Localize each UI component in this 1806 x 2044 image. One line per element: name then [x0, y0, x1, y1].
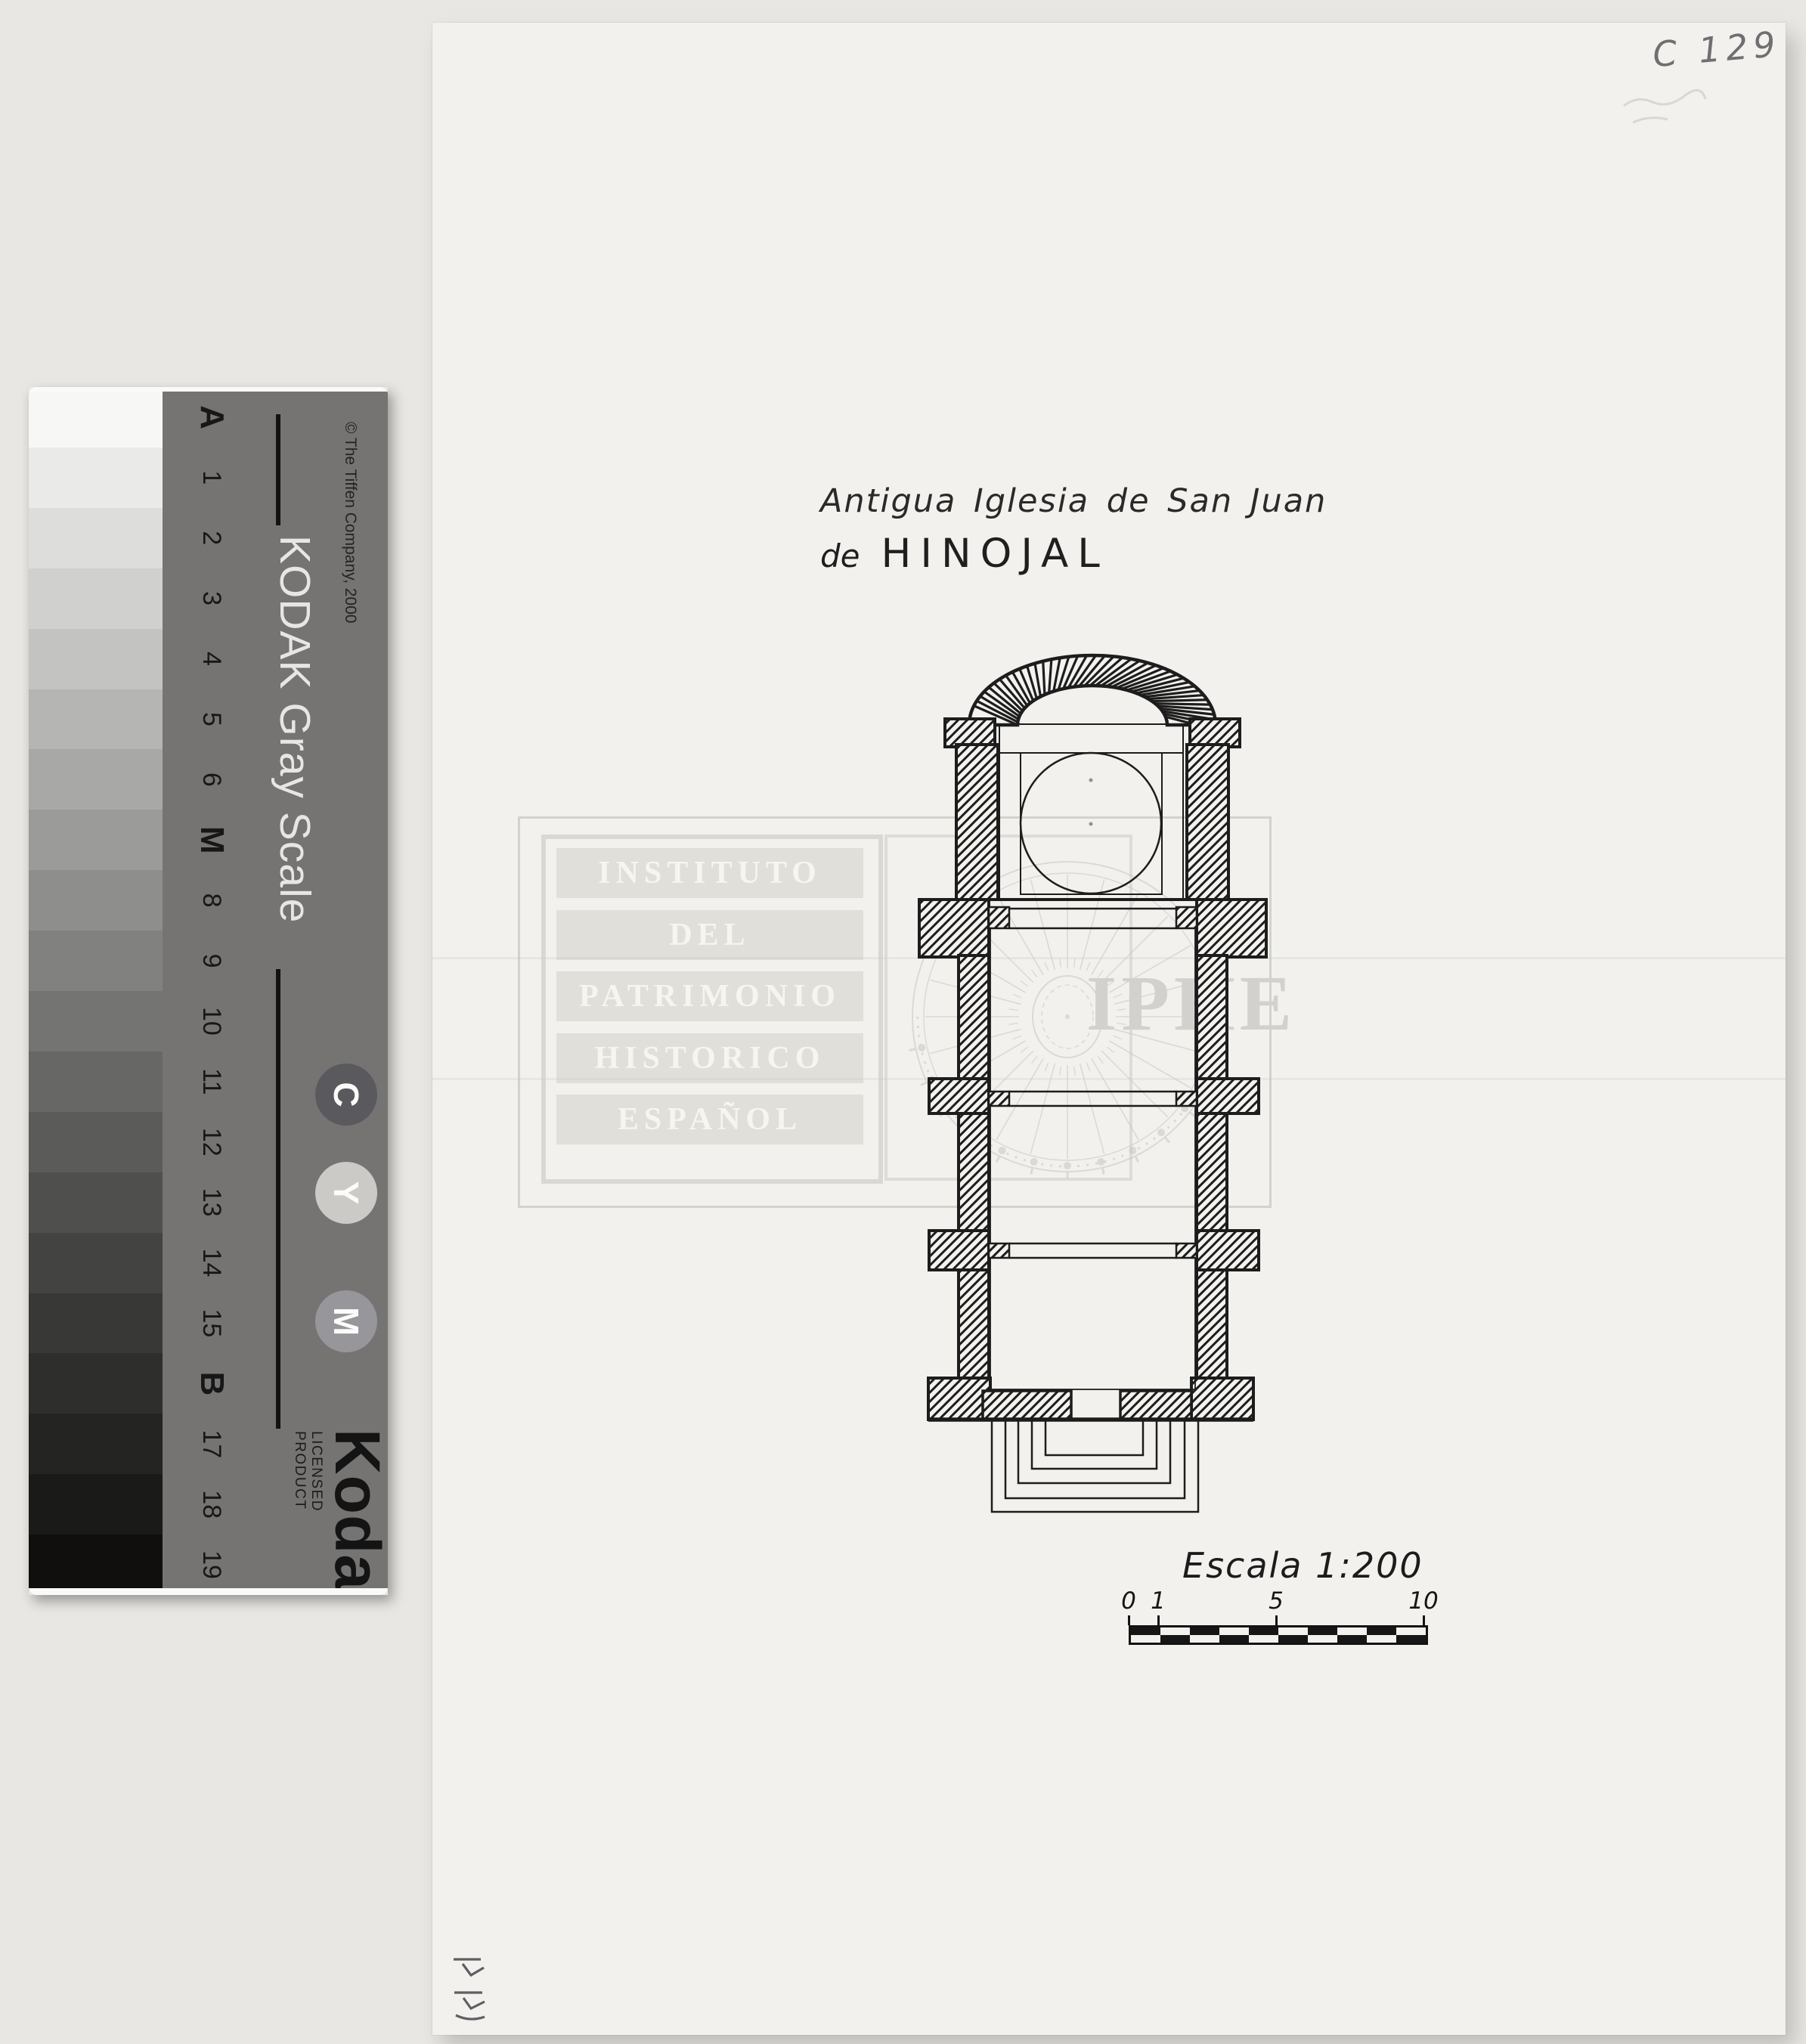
licensed-product-label: LICENSED PRODUCT [291, 1431, 324, 1595]
scale-tick-label: 1 [1151, 1587, 1166, 1615]
gray-patch [29, 1233, 163, 1294]
gray-patch [29, 931, 163, 992]
gray-patch [29, 568, 163, 630]
gray-patch [29, 1414, 163, 1475]
nave-wall [1197, 955, 1227, 1079]
buttress [919, 900, 989, 957]
chancel-lining [999, 753, 1183, 900]
scale-bar-cell [1278, 1635, 1308, 1643]
scale-bar-cell [1337, 1635, 1367, 1643]
nave-wall [959, 955, 989, 1079]
apse-step-band [999, 724, 1183, 753]
scale-tick [1423, 1615, 1425, 1625]
scale-bar-cell [1337, 1627, 1367, 1635]
watermark-acronym: IPHE [1086, 960, 1296, 1047]
patch-label: 1 [190, 448, 234, 508]
patch-label: 4 [190, 629, 234, 689]
patch-label: 12 [190, 1112, 234, 1172]
strip-copyright: © The Tiffen Company, 2000 [341, 422, 359, 623]
ink-circle-m: M [315, 1290, 377, 1352]
drawing-title-line2: deHINOJAL [820, 531, 1109, 577]
gray-patch [29, 1172, 163, 1234]
buttress [1197, 1079, 1259, 1113]
nave-wall [959, 1270, 989, 1391]
strip-rule [276, 969, 280, 1429]
buttress [1197, 1231, 1259, 1270]
patch-label: 6 [190, 749, 234, 810]
kodak-logo: Kodak [321, 1429, 388, 1595]
gray-patch [29, 870, 163, 931]
scale-bar-cell [1308, 1635, 1337, 1643]
margin-ink-mark [454, 1959, 485, 2019]
facade-corner [1191, 1378, 1253, 1420]
bay-outline [990, 1258, 1195, 1389]
scale-bar-cell [1278, 1627, 1308, 1635]
scale-bar-cell [1396, 1627, 1426, 1635]
buttress [1197, 900, 1266, 957]
scale-bar-cell [1396, 1635, 1426, 1643]
apse-tab [1190, 719, 1240, 747]
chancel-wall [956, 745, 998, 900]
patch-label: 17 [190, 1414, 234, 1474]
gray-patch [29, 508, 163, 569]
patch-label: 2 [190, 508, 234, 568]
arch-band [1009, 909, 1177, 928]
scanned-archive-sheet: INSTITUTODELPATRIMONIOHISTORICOESPAÑOL I… [0, 0, 1806, 2044]
arch-band [1009, 1243, 1177, 1258]
scale-bar-cell [1367, 1627, 1396, 1635]
patch-label: 5 [190, 689, 234, 749]
scale-bar-cell [1219, 1635, 1249, 1643]
gray-patch [29, 1112, 163, 1173]
scale-tick [1128, 1615, 1130, 1625]
facade-wall [1120, 1391, 1191, 1420]
pilaster [989, 907, 1009, 928]
gray-patch [29, 991, 163, 1052]
strip-cut-edge [29, 1588, 388, 1595]
gray-patch [29, 1051, 163, 1113]
pilaster [989, 1243, 1009, 1258]
scale-tick [1275, 1615, 1278, 1625]
ink-circle-y: Y [315, 1162, 377, 1224]
scale-bar-cell [1190, 1627, 1219, 1635]
patch-label: 15 [190, 1293, 234, 1353]
strip-rule [276, 414, 280, 525]
gray-patch [29, 1535, 163, 1595]
scale-bar-cell [1131, 1635, 1160, 1643]
patch-label: 3 [190, 568, 234, 629]
patch-label: 19 [190, 1535, 234, 1595]
scale-tick-label: 5 [1269, 1587, 1284, 1615]
arch-band [1009, 1092, 1177, 1106]
nave-wall [1197, 1113, 1227, 1231]
patch-label-row: A123456M89101112131415B171819 [190, 387, 234, 1595]
patch-label: B [190, 1353, 234, 1414]
drawing-title-line1: Antigua Iglesia de San Juan [820, 482, 1327, 520]
gray-patch [29, 1474, 163, 1535]
kodak-gray-scale-strip: © The Tiffen Company, 2000 KODAK Gray Sc… [29, 387, 388, 1595]
patch-label: 10 [190, 991, 234, 1051]
pencil-scribble [1624, 90, 1705, 122]
scale-bar-cell [1190, 1635, 1219, 1643]
patch-label: M [190, 810, 234, 870]
scale-bar-cell [1249, 1635, 1278, 1643]
patch-label: 8 [190, 870, 234, 931]
scale-label: Escala 1:200 [1182, 1545, 1423, 1586]
patch-label: 18 [190, 1474, 234, 1535]
entrance-steps [992, 1420, 1198, 1512]
nave-wall [959, 1113, 989, 1231]
gray-patch [29, 387, 163, 448]
title-name: HINOJAL [881, 531, 1109, 577]
scale-tick-label: 0 [1121, 1587, 1136, 1615]
gray-patch [29, 749, 163, 810]
graphic-scale-bar: 01510 [1129, 1587, 1428, 1642]
ink-circle-c: C [315, 1064, 377, 1126]
gray-patch [29, 1353, 163, 1414]
kodak-strip-face: © The Tiffen Company, 2000 KODAK Gray Sc… [29, 387, 388, 1595]
patch-label: 13 [190, 1172, 234, 1233]
scale-tick [1157, 1615, 1160, 1625]
scale-bar-cell [1160, 1635, 1190, 1643]
patch-label: A [190, 387, 234, 448]
scale-bar-cell [1131, 1627, 1160, 1635]
compass-prick [1089, 822, 1093, 826]
scale-bar-cell [1249, 1627, 1278, 1635]
scale-bar-cell [1308, 1627, 1337, 1635]
facade-wall [983, 1391, 1071, 1420]
scale-bar-cell [1367, 1635, 1396, 1643]
gray-patch [29, 810, 163, 871]
pilaster [1176, 907, 1197, 928]
gray-patch [29, 629, 163, 690]
title-prefix: de [820, 537, 860, 574]
buttress [929, 1231, 989, 1270]
compass-prick [1089, 779, 1093, 782]
patch-label: 14 [190, 1233, 234, 1293]
strip-cut-edge [29, 387, 388, 392]
gray-patch [29, 448, 163, 509]
strip-heading: KODAK Gray Scale [270, 535, 320, 923]
pilaster [1176, 1243, 1197, 1258]
pilaster [989, 1092, 1009, 1106]
scale-bar-cell [1160, 1627, 1190, 1635]
scale-bar-cell [1219, 1627, 1249, 1635]
apse-tab [945, 719, 995, 747]
pilaster [1176, 1092, 1197, 1106]
scale-bar-frame [1129, 1625, 1428, 1645]
nave-wall [1197, 1270, 1227, 1391]
gray-patch-row [29, 387, 163, 1595]
church-floor-plan [919, 655, 1266, 1512]
gray-patch [29, 1293, 163, 1355]
gray-patch [29, 689, 163, 751]
scale-tick-label: 10 [1408, 1587, 1438, 1615]
bay-outline [990, 1106, 1195, 1243]
patch-label: 11 [190, 1051, 234, 1112]
buttress [929, 1079, 989, 1113]
chancel-wall [1187, 745, 1228, 900]
patch-label: 9 [190, 931, 234, 991]
facade-corner [928, 1378, 990, 1420]
